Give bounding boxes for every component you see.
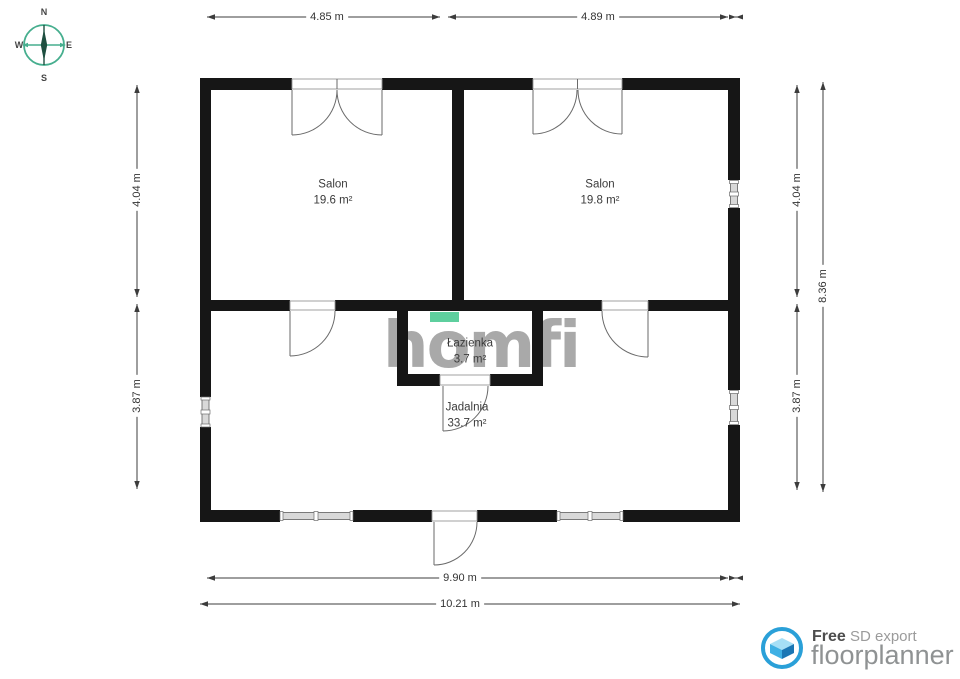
- room-label-salon-2: Salon 19.8 m²: [581, 177, 620, 208]
- dim-right-total: 8.36 m: [817, 265, 829, 307]
- room-name: Łazienka: [447, 336, 493, 352]
- room-name: Salon: [314, 177, 353, 193]
- dim-top-right: 4.89 m: [577, 11, 619, 23]
- room-label-salon-1: Salon 19.6 m²: [314, 177, 353, 208]
- compass-north-label: N: [41, 7, 48, 17]
- room-area: 19.8 m²: [581, 193, 620, 209]
- room-area: 3.7 m²: [447, 352, 493, 368]
- dim-right-upper: 4.04 m: [791, 169, 803, 211]
- floorplanner-wordmark: floorplanner: [811, 640, 954, 671]
- room-name: Salon: [581, 177, 620, 193]
- compass-east-label: E: [66, 40, 72, 50]
- compass-south-label: S: [41, 73, 47, 83]
- dim-bottom-outer: 10.21 m: [436, 598, 484, 610]
- homfi-logo-accent-bar: [430, 312, 459, 322]
- room-area: 19.6 m²: [314, 193, 353, 209]
- dim-left-lower: 3.87 m: [131, 375, 143, 417]
- room-area: 33.7 m²: [446, 416, 489, 432]
- dim-right-lower: 3.87 m: [791, 375, 803, 417]
- room-name: Jadalnia: [446, 400, 489, 416]
- room-label-lazienka: Łazienka 3.7 m²: [447, 336, 493, 367]
- dim-bottom-inner: 9.90 m: [439, 572, 481, 584]
- dim-left-upper: 4.04 m: [131, 169, 143, 211]
- floor-plan-page: homfi: [0, 0, 960, 679]
- floorplanner-icon: [763, 629, 801, 667]
- compass-icon: [22, 25, 66, 65]
- room-label-jadalnia: Jadalnia 33.7 m²: [446, 400, 489, 431]
- compass-west-label: W: [15, 40, 24, 50]
- dim-top-left: 4.85 m: [306, 11, 348, 23]
- walls: [200, 78, 740, 522]
